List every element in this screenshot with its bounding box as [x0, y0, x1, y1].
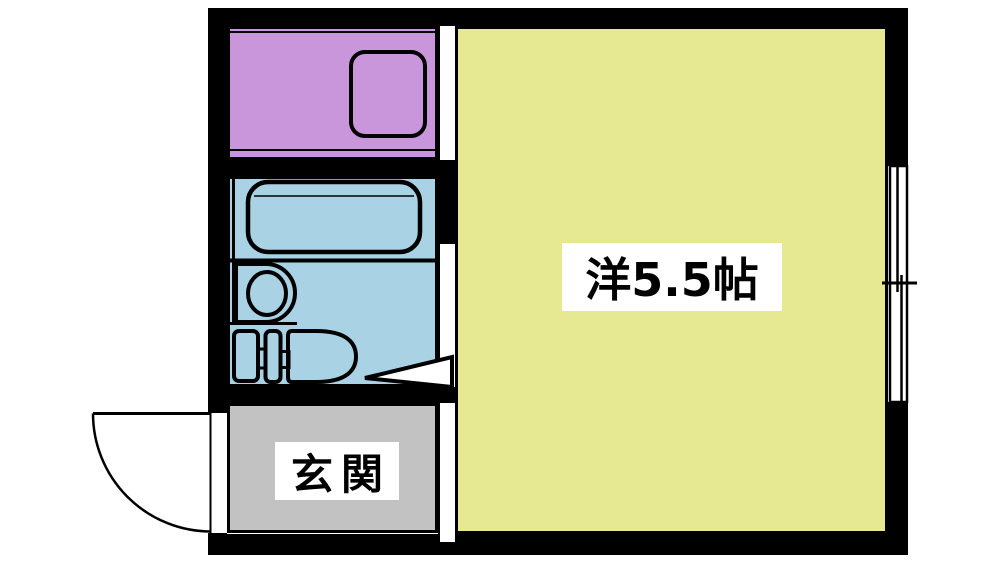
room-bathroom [227, 176, 438, 387]
wall-right-lower [888, 402, 908, 555]
entrance-door-swing-arc-icon [93, 414, 211, 532]
entrance-door [93, 413, 227, 533]
floor-plan: 玄関 洋5.5帖 [0, 0, 1000, 562]
window-frame-icon [890, 166, 907, 402]
wall-right-upper [888, 8, 908, 166]
wall-bottom [208, 534, 908, 555]
wall-bathroom-entrance [227, 387, 440, 403]
partition-openings-strip [438, 26, 457, 542]
wall-left [208, 8, 227, 555]
main-room-label: 洋5.5帖 [562, 243, 782, 311]
partition-wall-segment-lower [438, 387, 457, 403]
entrance-label: 玄関 [275, 442, 399, 500]
room-kitchen [227, 26, 438, 160]
wall-top [208, 8, 908, 26]
wall-kitchen-bathroom [227, 160, 440, 176]
partition-wall-segment-upper [438, 160, 457, 244]
